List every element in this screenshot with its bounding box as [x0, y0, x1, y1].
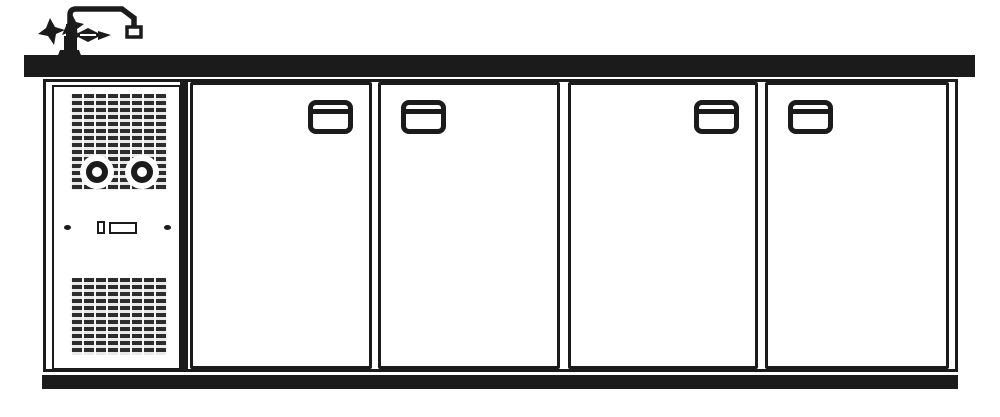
door-3-handle [694, 100, 739, 134]
cabinet-body [43, 79, 958, 372]
control-knob-right [125, 155, 159, 189]
indicator-panel [109, 222, 137, 234]
handle-recess-bar [699, 109, 734, 114]
section-divider [180, 82, 188, 369]
base-plinth [42, 375, 958, 389]
door-4-handle [788, 100, 833, 134]
door-2 [378, 82, 560, 369]
door-1-handle [308, 100, 353, 134]
door-2-handle [401, 100, 446, 134]
knob-ring-icon [86, 161, 108, 183]
technical-drawing-back-bar-cooler [0, 0, 1000, 417]
toggle-switch [97, 221, 105, 234]
handle-recess-bar [406, 109, 441, 114]
screw-icon-left [64, 225, 71, 230]
door-3 [568, 82, 758, 369]
vent-grille-bottom [70, 278, 167, 355]
screw-icon-right [164, 225, 171, 230]
countertop-slab [24, 55, 975, 77]
handle-recess-bar [793, 109, 828, 114]
door-1 [190, 82, 372, 369]
compressor-panel [52, 85, 181, 370]
control-knob-left [80, 155, 114, 189]
handle-recess-bar [313, 109, 348, 114]
beer-tap-icon [36, 2, 148, 60]
knob-ring-icon [131, 161, 153, 183]
door-4 [765, 82, 949, 369]
